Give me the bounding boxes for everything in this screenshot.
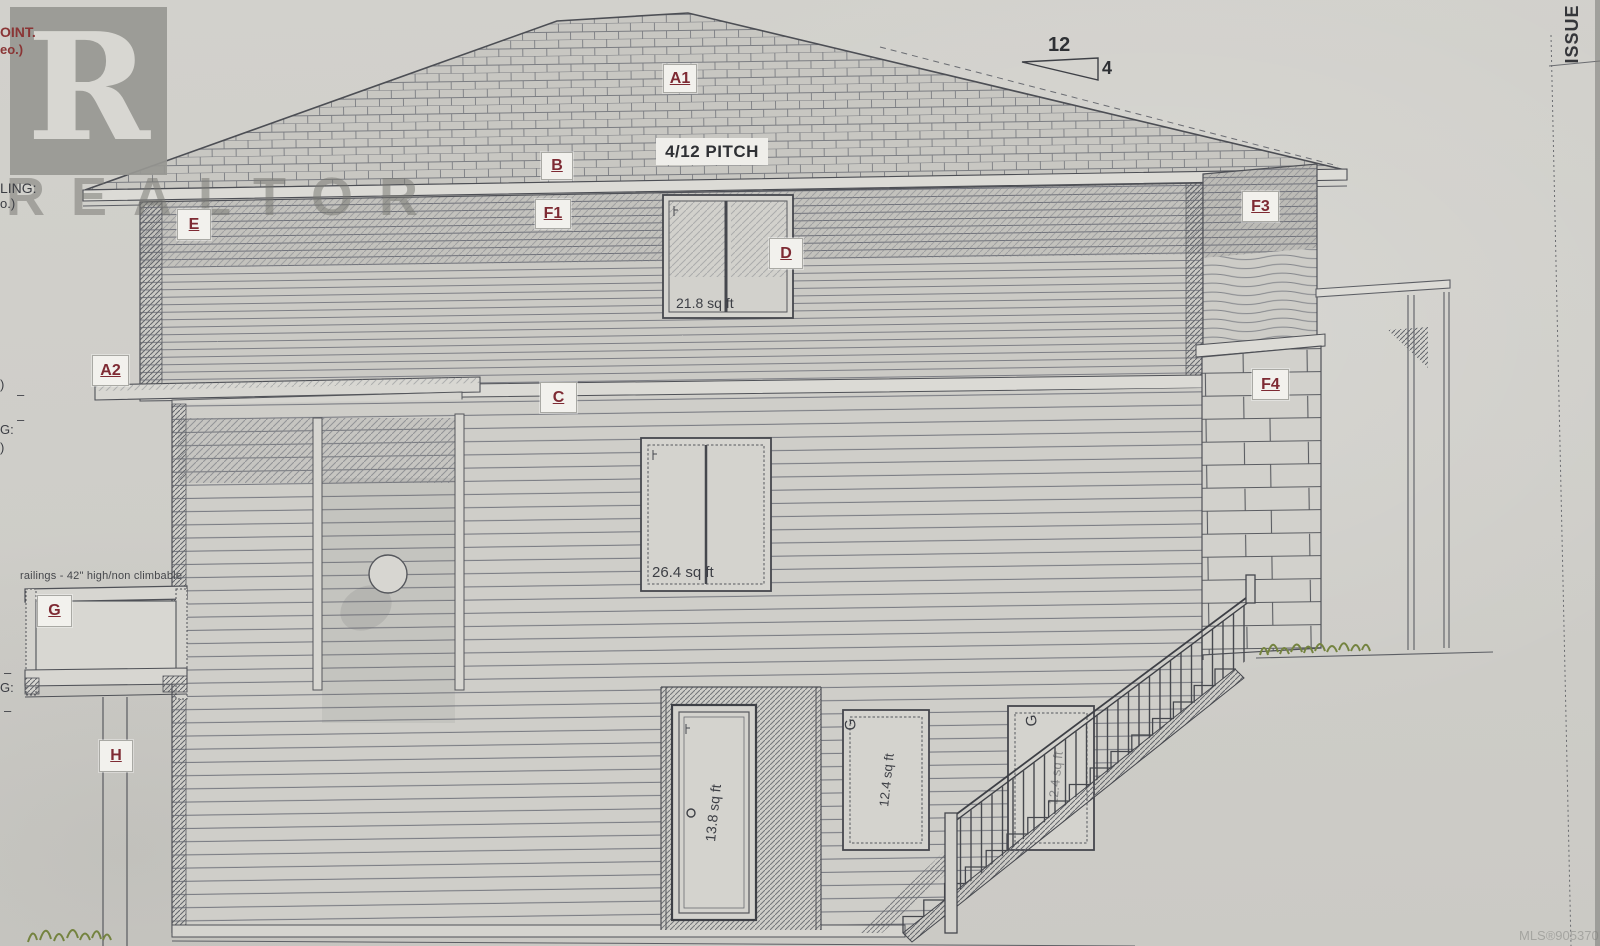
upper-window-area: 21.8 sq ft xyxy=(676,295,734,311)
pitch-label: 4/12 PITCH xyxy=(656,138,768,165)
basement-door-area: 13.8 sq ft xyxy=(659,763,768,863)
elevation-drawing-photo: R REALTOR OINT. eo.) LING: o.) ) – – G: … xyxy=(0,0,1600,946)
chimney-column xyxy=(1196,164,1325,655)
sheet-side-label: ISSUE xyxy=(1558,2,1586,66)
edge-fragment-paren1: ) xyxy=(0,378,4,391)
railing-note: railings - 42" high/non climbable xyxy=(20,570,182,582)
basement-window1-area: 12.4 sq ft xyxy=(836,728,936,833)
basement-window2-area: 12.4 sq ft xyxy=(1005,726,1105,831)
edge-dash-3: – xyxy=(4,666,11,679)
ref-label-c: C xyxy=(540,382,577,413)
wall-trim-board-left xyxy=(313,418,322,690)
wall-trim-board-right xyxy=(455,414,464,690)
edge-dash-4: – xyxy=(4,704,11,717)
grass-left xyxy=(28,930,111,942)
edge-dash-1: – xyxy=(17,388,24,401)
ref-label-b: B xyxy=(541,152,573,180)
ref-label-g: G xyxy=(37,595,72,627)
edge-fragment-point: OINT. xyxy=(0,25,36,39)
ground-line-right xyxy=(1256,652,1493,658)
ref-label-f1: F1 xyxy=(535,199,571,229)
upper-left-corner-board xyxy=(140,201,162,396)
basement-window1-tag: G xyxy=(842,718,860,731)
ref-label-a2: A2 xyxy=(92,355,129,386)
edge-fragment-eo: eo.) xyxy=(0,43,23,56)
newel-post-bottom xyxy=(945,813,957,933)
edge-fragment-paren2: ) xyxy=(0,441,4,454)
pitch-triangle xyxy=(1020,54,1110,84)
ref-label-f4: F4 xyxy=(1252,369,1289,400)
edge-fragment-o: o.) xyxy=(0,197,15,210)
edge-fragment-ling: LING: xyxy=(0,181,37,195)
edge-fragment-g1: G: xyxy=(0,423,14,436)
newel-post-top xyxy=(1246,575,1255,603)
wall-light-fixture xyxy=(369,555,407,593)
ref-label-f3: F3 xyxy=(1242,191,1279,222)
edge-dash-2: – xyxy=(17,413,24,426)
mls-number: MLS®905370 xyxy=(1519,928,1599,943)
ground-line-left xyxy=(172,941,1135,946)
photo-edge xyxy=(1595,0,1600,946)
sheet-border xyxy=(1549,35,1600,946)
basement-window2-tag: G xyxy=(1023,714,1041,727)
ref-label-a1: A1 xyxy=(663,64,697,93)
ref-label-e: E xyxy=(177,209,211,240)
ref-label-h: H xyxy=(99,740,133,772)
main-window-area: 26.4 sq ft xyxy=(652,564,714,581)
elevation-linework xyxy=(0,0,1600,946)
ref-label-d: D xyxy=(769,238,803,269)
edge-fragment-g2: G: xyxy=(0,681,14,694)
realtor-logo-letter: R xyxy=(27,13,150,161)
